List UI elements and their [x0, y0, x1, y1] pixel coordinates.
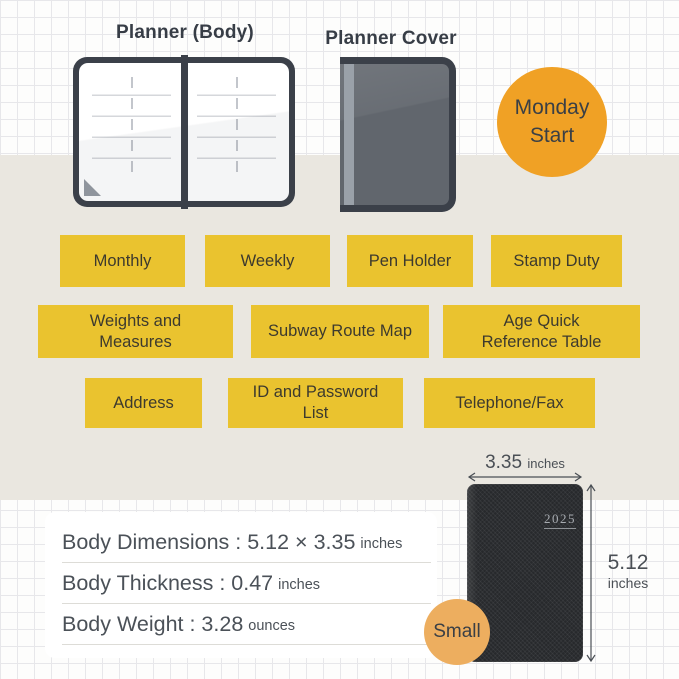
- monday-start-line2: Start: [530, 122, 574, 150]
- monday-start-line1: Monday: [515, 94, 590, 122]
- feature-label-monthly: Monthly: [60, 235, 185, 287]
- monday-start-badge: Monday Start: [497, 67, 607, 177]
- feature-label-pen-holder: Pen Holder: [347, 235, 473, 287]
- height-dimension-label: 5.12 inches: [597, 551, 659, 591]
- planner-cover-illustration: [340, 57, 456, 212]
- spec-body-dimensions: Body Dimensions : 5.12 × 3.35 inches: [62, 522, 431, 563]
- width-arrow: [466, 471, 584, 483]
- feature-label-address: Address: [85, 378, 202, 428]
- cover-spine-strip: [344, 64, 354, 205]
- spec-body-thickness: Body Thickness : 0.47 inches: [62, 563, 431, 604]
- feature-label-id-and-password-list: ID and Password List: [228, 378, 403, 428]
- feature-label-weights-and-measures: Weights and Measures: [38, 305, 233, 358]
- folded-corner: [84, 179, 101, 196]
- feature-label-weekly: Weekly: [205, 235, 330, 287]
- feature-label-age-quick-reference-table: Age Quick Reference Table: [443, 305, 640, 358]
- planner-body-title: Planner (Body): [73, 22, 297, 44]
- embossed-year: 2025: [544, 511, 576, 529]
- feature-label-stamp-duty: Stamp Duty: [491, 235, 622, 287]
- spec-card: Body Dimensions : 5.12 × 3.35 inches Bod…: [45, 512, 437, 658]
- size-badge-label: Small: [433, 621, 481, 643]
- planner-body-illustration: [73, 57, 295, 207]
- size-badge: Small: [424, 599, 490, 665]
- feature-label-subway-route-map: Subway Route Map: [251, 305, 429, 358]
- planner-spine: [181, 55, 188, 209]
- spec-body-weight: Body Weight : 3.28 ounces: [62, 604, 431, 645]
- cover-face: [340, 64, 449, 205]
- planner-cover-title: Planner Cover: [321, 28, 461, 50]
- height-arrow: [585, 482, 597, 664]
- feature-label-telephone-fax: Telephone/Fax: [424, 378, 595, 428]
- planner-infographic: Planner (Body) Planner Cover Monday Star…: [0, 0, 679, 679]
